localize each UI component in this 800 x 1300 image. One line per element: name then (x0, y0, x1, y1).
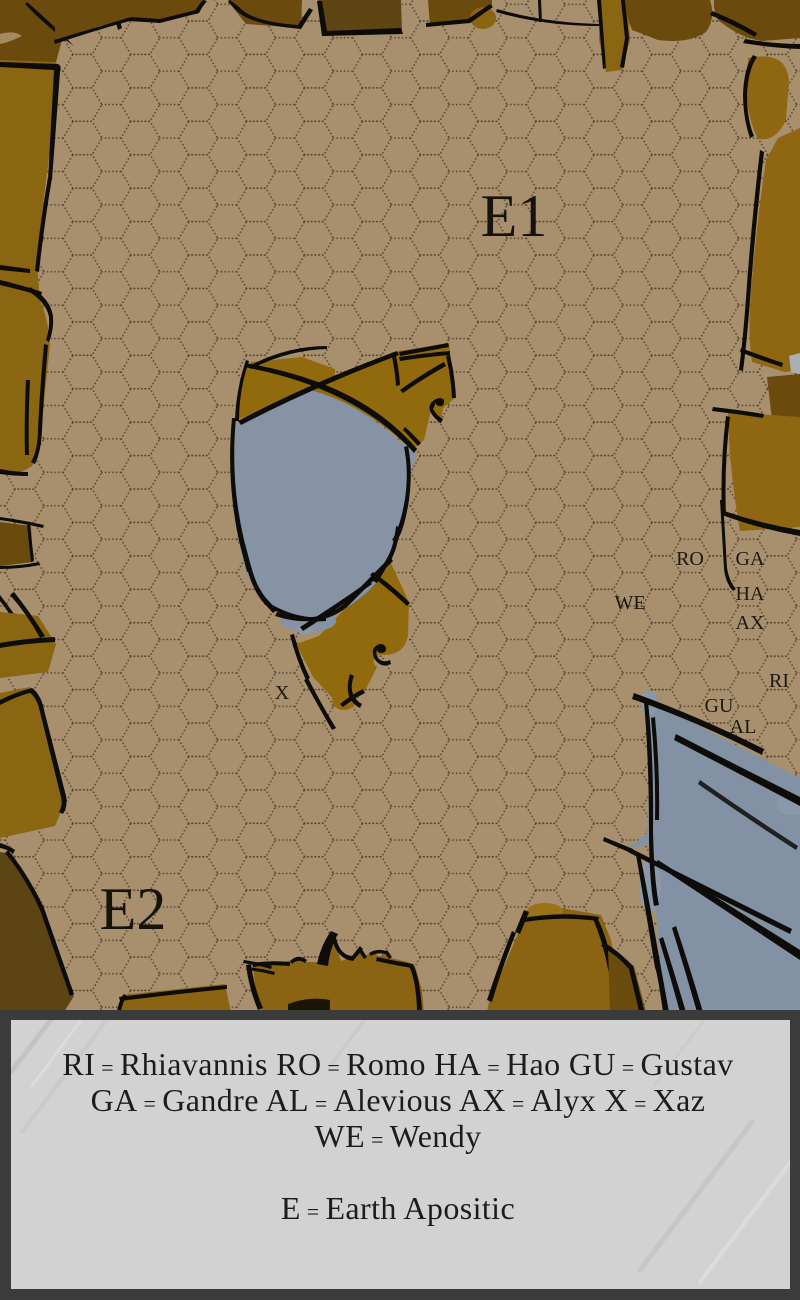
svg-text:AL: AL (730, 716, 757, 738)
svg-text:WE = Wendy: WE = Wendy (314, 1118, 481, 1154)
svg-text:RI: RI (769, 670, 789, 692)
svg-text:RO: RO (676, 548, 704, 570)
svg-text:E2: E2 (100, 876, 167, 942)
svg-text:GA: GA (736, 548, 765, 570)
svg-text:AX: AX (736, 612, 765, 634)
svg-text:GA = Gandre AL = Alevious AX =: GA = Gandre AL = Alevious AX = Alyx X = … (91, 1082, 706, 1118)
svg-text:GU: GU (705, 695, 734, 717)
svg-text:HA: HA (736, 583, 765, 605)
svg-text:E1: E1 (481, 183, 548, 249)
svg-text:WE: WE (614, 592, 645, 614)
svg-text:X: X (275, 682, 290, 704)
